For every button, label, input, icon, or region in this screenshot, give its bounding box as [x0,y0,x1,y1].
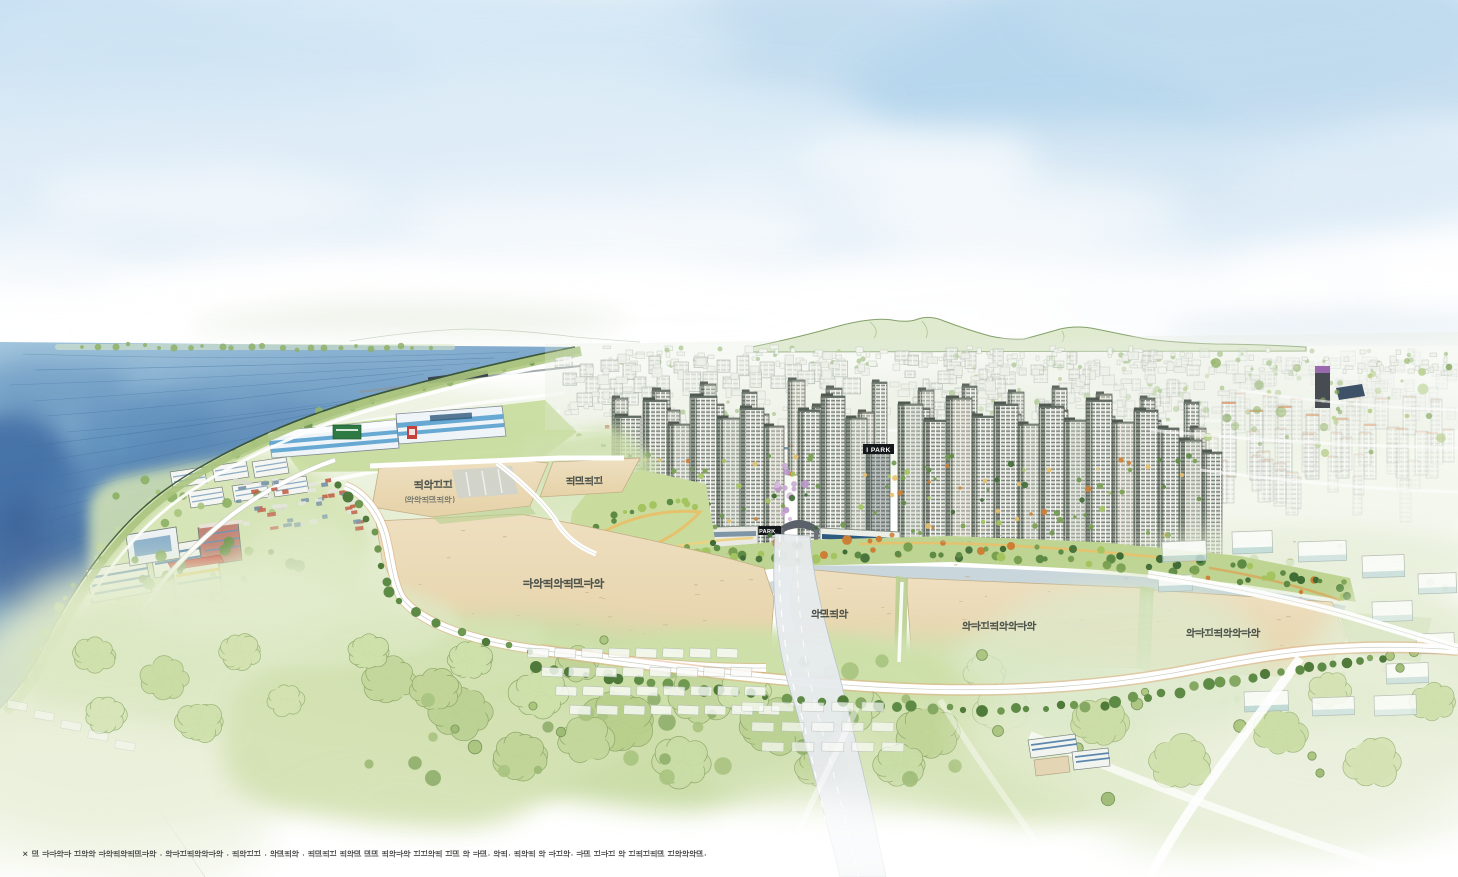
svg-text:I PARK: I PARK [866,447,891,454]
svg-text:I PARK: I PARK [755,529,775,535]
